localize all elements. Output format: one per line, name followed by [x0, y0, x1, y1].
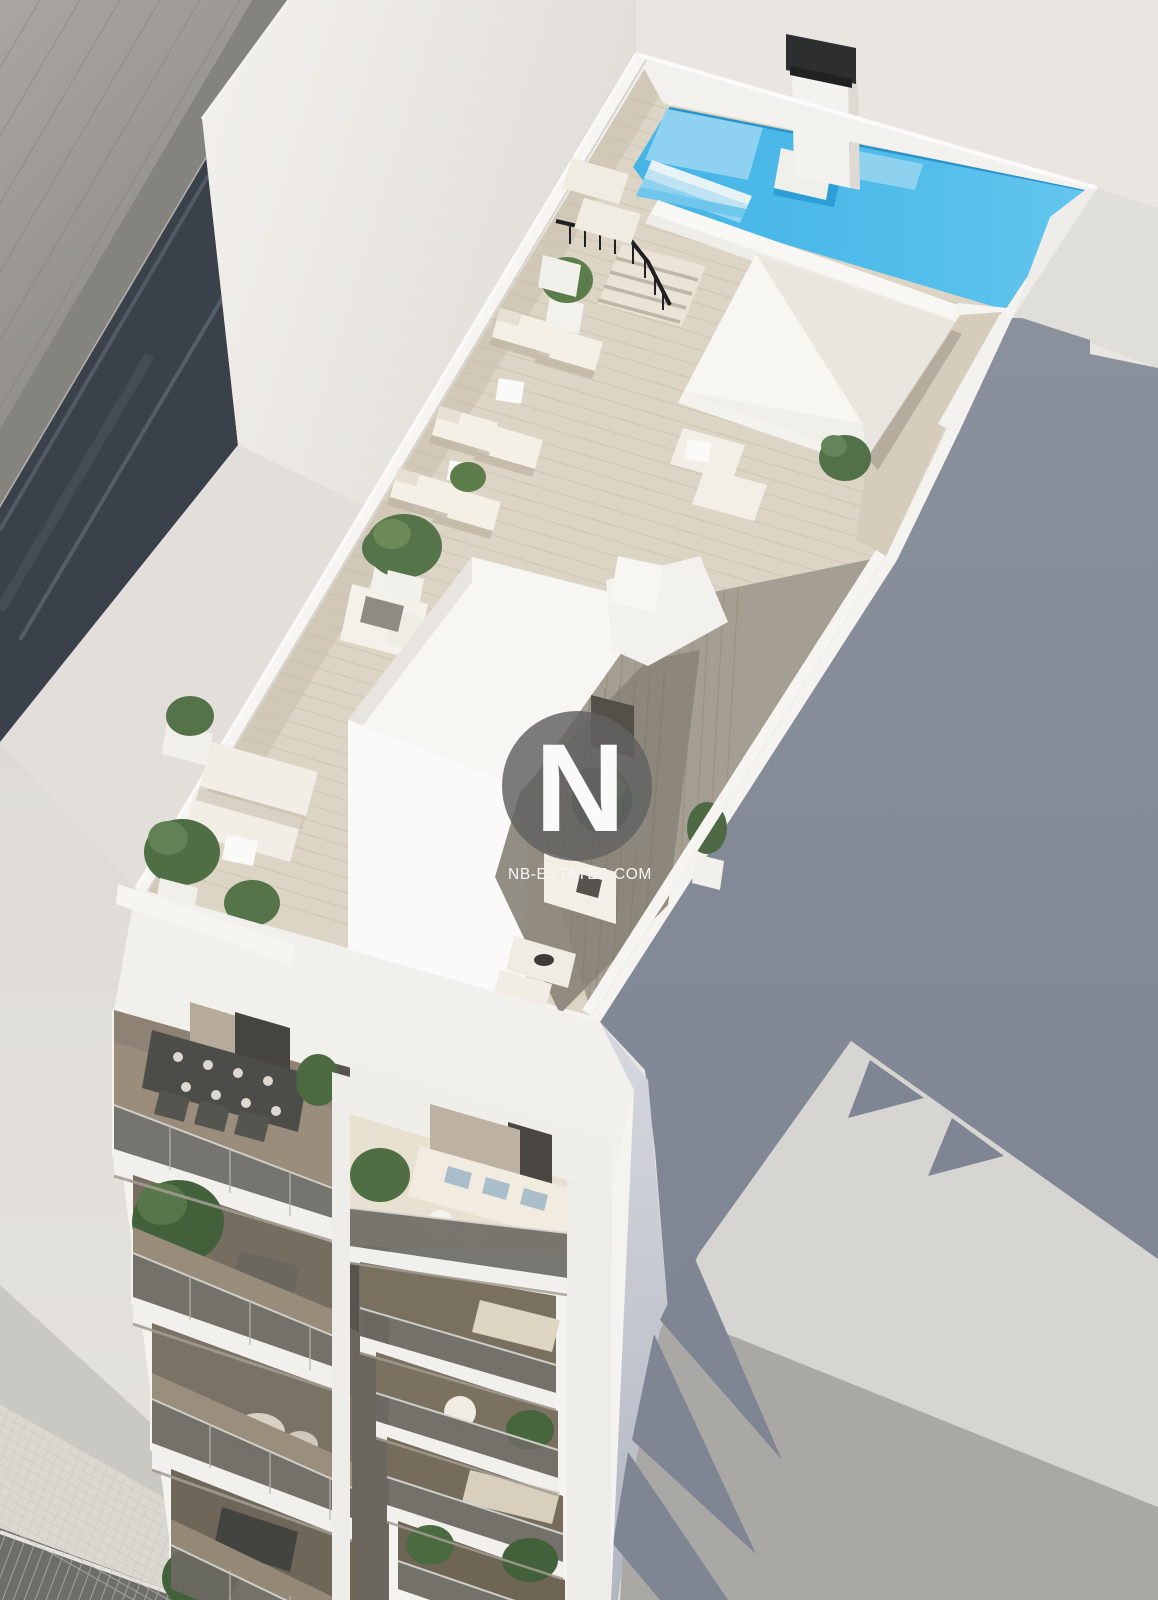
svg-text:NB-ESTATES.COM: NB-ESTATES.COM: [508, 866, 652, 883]
svg-text:N: N: [535, 719, 625, 858]
